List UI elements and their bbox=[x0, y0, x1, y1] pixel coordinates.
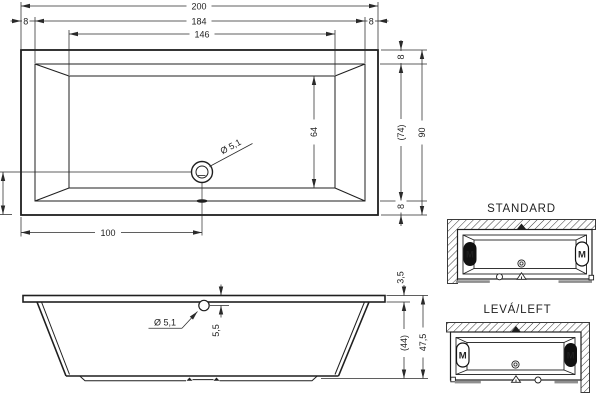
dim-drain-from-top: 5,5 bbox=[211, 324, 221, 337]
drain-icon-standard bbox=[518, 260, 525, 267]
dim-length-total: 200 bbox=[191, 1, 206, 11]
variant-standard-title: STANDARD bbox=[487, 203, 556, 215]
dim-height-total: 47,5 bbox=[418, 334, 428, 352]
dim-rim-top: 8 bbox=[396, 54, 406, 59]
dim-width-floor: 64 bbox=[309, 127, 319, 137]
top-view: 200 8 184 8 146 8 (74) 8 90 64 Ø 5,1 100 bbox=[0, 1, 428, 239]
drain-icon bbox=[192, 162, 213, 183]
variant-left: LEVÁ/LEFT M M bbox=[447, 303, 590, 393]
motor-right-icon: M bbox=[576, 242, 589, 266]
fitting-circle-icon bbox=[497, 274, 503, 280]
dim-drain-diameter-side: Ø 5,1 bbox=[154, 318, 176, 328]
dim-width-inner-rim: (74) bbox=[396, 124, 406, 140]
dim-drain-from-left: 100 bbox=[100, 228, 115, 238]
corner-detail-square bbox=[451, 377, 456, 382]
motor-left-icon: M bbox=[464, 242, 477, 266]
dim-body-depth: (44) bbox=[399, 335, 409, 351]
dim-length-floor: 146 bbox=[194, 29, 209, 39]
motor-left-icon: M bbox=[457, 343, 470, 367]
skirt-bar-right bbox=[559, 280, 593, 283]
drawing-canvas: 200 8 184 8 146 8 (74) 8 90 64 Ø 5,1 100 bbox=[0, 0, 600, 408]
variant-standard: STANDARD M M bbox=[448, 203, 596, 284]
dim-rim-thickness: 3,5 bbox=[396, 271, 406, 284]
drain-icon-left bbox=[512, 361, 519, 368]
tub-outline-left bbox=[451, 332, 582, 380]
motor-right-label: M bbox=[567, 351, 575, 362]
skirt-bar-left bbox=[455, 381, 481, 384]
base-skirt bbox=[80, 376, 317, 381]
skirt-bar-right bbox=[555, 381, 579, 384]
motor-left-label: M bbox=[466, 250, 474, 261]
valve-triangle-icon bbox=[512, 376, 521, 383]
corner-tapers-left bbox=[456, 338, 575, 375]
tub-rim-left bbox=[456, 338, 575, 375]
motor-right-label: M bbox=[578, 250, 586, 261]
dim-width-total: 90 bbox=[417, 127, 427, 137]
tub-outline-standard bbox=[458, 230, 593, 280]
tub-outer-edge bbox=[21, 50, 378, 215]
motor-right-icon: M bbox=[565, 343, 578, 367]
skirt-bar-left bbox=[456, 280, 490, 283]
dim-rim-left: 8 bbox=[23, 16, 28, 26]
dim-length-inner-rim: 184 bbox=[191, 16, 206, 26]
dimension-lines-side bbox=[149, 285, 424, 379]
dim-rim-right: 8 bbox=[369, 16, 374, 26]
extension-lines-side bbox=[210, 296, 428, 379]
variant-left-title: LEVÁ/LEFT bbox=[484, 303, 552, 316]
fitting-circle-icon bbox=[535, 377, 541, 383]
side-view: Ø 5,1 5,5 3,5 (44) 47,5 bbox=[23, 271, 429, 381]
bathtub-technical-drawing: 200 8 184 8 146 8 (74) 8 90 64 Ø 5,1 100 bbox=[0, 0, 600, 408]
corner-detail-square bbox=[589, 275, 594, 280]
tub-body-profile bbox=[37, 302, 369, 376]
dim-rim-bottom: 8 bbox=[396, 204, 406, 209]
dim-drain-diameter-top: Ø 5,1 bbox=[219, 137, 243, 156]
motor-left-label: M bbox=[459, 351, 467, 362]
drain-hole-side bbox=[199, 300, 209, 310]
